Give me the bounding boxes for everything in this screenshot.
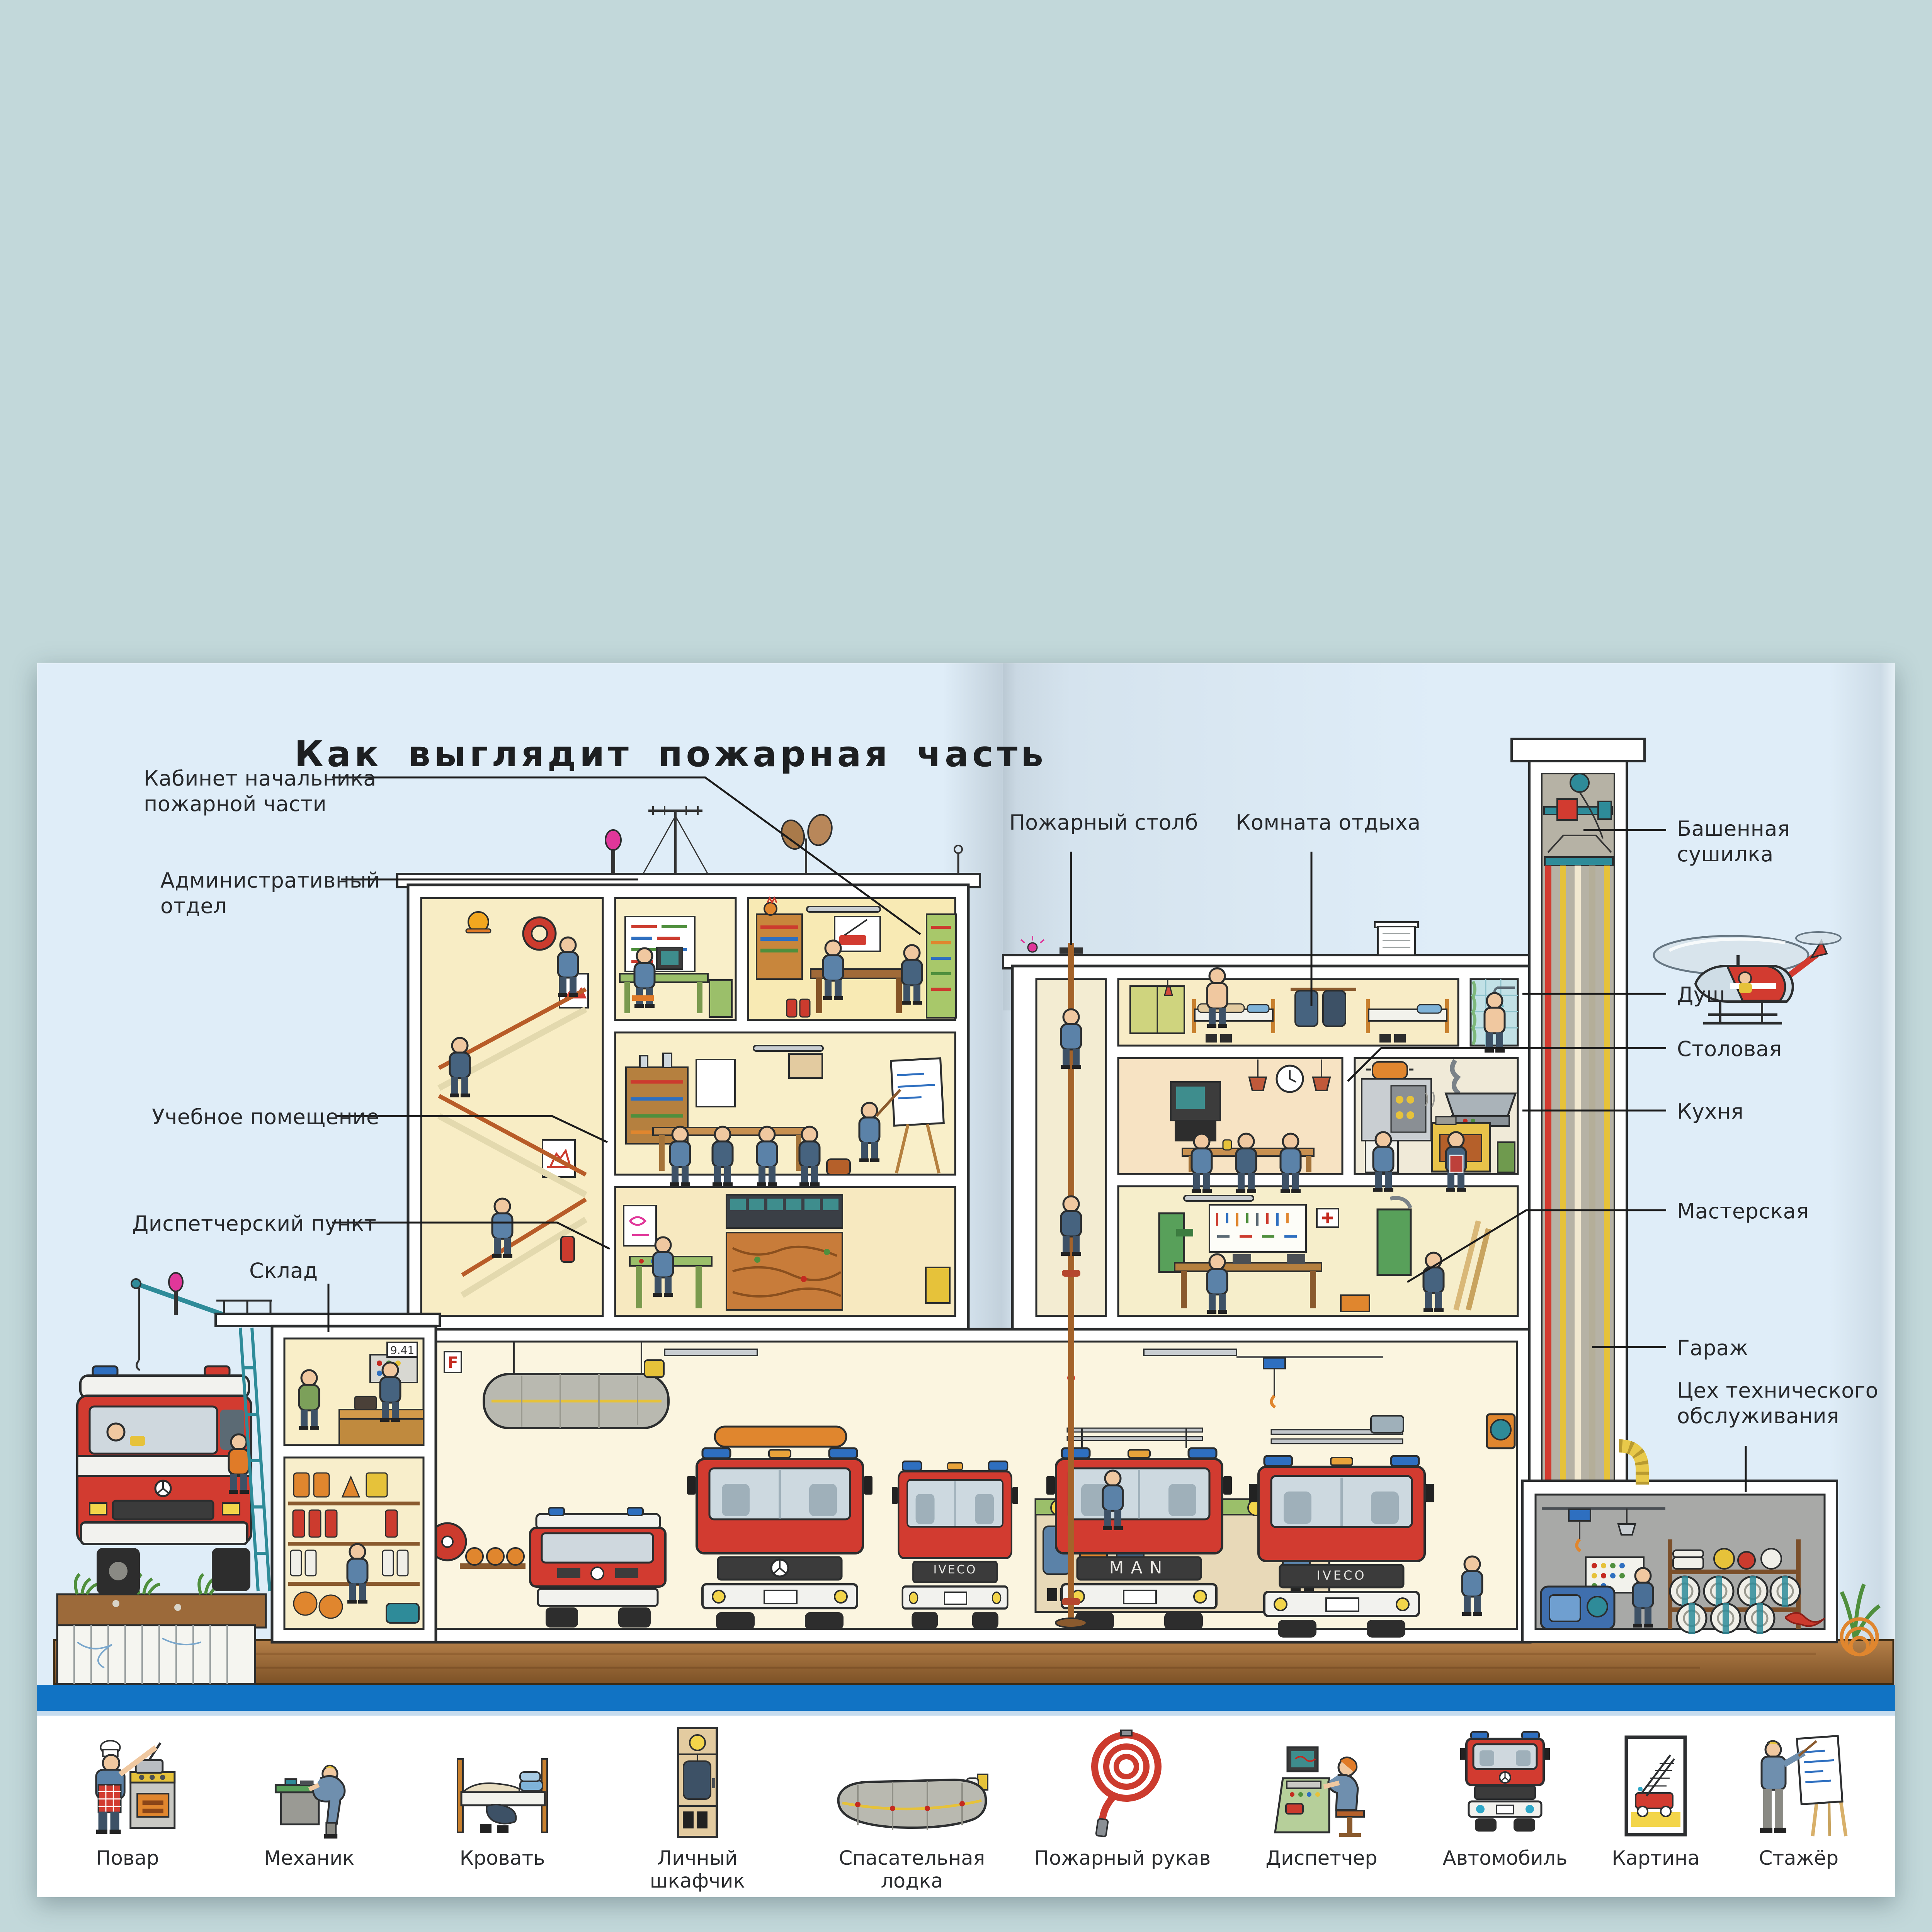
label-dispatch: Диспетчерский пункт — [132, 1211, 376, 1236]
hydrant-sign-letter: F — [447, 1354, 458, 1372]
truck-marking-iveco-left: IVECO — [934, 1563, 977, 1577]
fire-station-cutaway-illustration: F IVECO MAN — [0, 0, 1932, 1932]
fire-hose-icon — [1034, 1723, 1211, 1840]
truck-marking-iveco-right: IVECO — [1316, 1568, 1366, 1583]
label-maintenance: Цех технического обслуживания — [1677, 1378, 1878, 1429]
vocab-item-trainee: Стажёр — [1710, 1723, 1888, 1870]
vocab-label: Личный шкафчик — [609, 1847, 786, 1893]
vocab-label: Кровать — [413, 1847, 591, 1870]
page-title: Как выглядит пожарная часть — [294, 733, 1047, 775]
label-training: Учебное помещение — [152, 1104, 379, 1130]
label-pole: Пожарный столб — [1009, 810, 1198, 835]
cook-icon — [39, 1723, 216, 1840]
helicopter — [1654, 932, 1841, 1023]
label-admin: Административный отдел — [160, 868, 380, 919]
boat-icon — [823, 1723, 1001, 1840]
blue-divider-bar — [37, 1685, 1895, 1711]
digital-clock-sign: 9.41 — [387, 1342, 417, 1357]
vocab-item-dispatcher: Диспетчер — [1233, 1723, 1410, 1870]
drying-tower — [1512, 739, 1645, 1590]
left-roof-items — [605, 806, 962, 874]
label-chief-office: Кабинет начальника пожарной части — [144, 766, 376, 817]
clock-sign-text: 9.41 — [390, 1344, 414, 1357]
fire-truck-iveco-left: IVECO — [892, 1461, 1018, 1628]
garage-block: F IVECO MAN — [408, 1329, 1530, 1642]
left-building — [397, 806, 980, 1329]
vocab-item-hose: Пожарный рукав — [1034, 1723, 1211, 1870]
small-fire-truck-outside — [77, 1366, 251, 1594]
mechanic-icon — [220, 1723, 398, 1840]
label-garage: Гараж — [1677, 1335, 1748, 1361]
label-kitchen: Кухня — [1677, 1099, 1744, 1124]
label-dining: Столовая — [1677, 1036, 1782, 1062]
bed-icon — [413, 1723, 591, 1840]
book-spread-photo: F IVECO MAN — [0, 0, 1932, 1932]
hydrant-sign: F — [444, 1352, 461, 1372]
vocab-item-cook: Повар — [39, 1723, 216, 1870]
vocab-label: Диспетчер — [1233, 1847, 1410, 1870]
vocab-item-boat: Спасательная лодка — [823, 1723, 1001, 1893]
fire-truck-mercedes — [687, 1427, 872, 1630]
locker-icon — [609, 1723, 786, 1840]
driveway-ground — [54, 1640, 1893, 1684]
vocab-item-locker: Личный шкафчик — [609, 1723, 786, 1893]
vocab-item-bed: Кровать — [413, 1723, 591, 1870]
truck-marking-man: MAN — [1109, 1558, 1169, 1578]
trainee-icon — [1710, 1723, 1888, 1840]
vocab-label: Спасательная лодка — [823, 1847, 1001, 1893]
white-fence — [57, 1625, 255, 1684]
front-yard — [57, 1273, 270, 1684]
wall-fan — [1487, 1414, 1515, 1448]
vocab-label: Механик — [220, 1847, 398, 1870]
label-rest-room: Комната отдыха — [1236, 810, 1421, 835]
vocab-label: Стажёр — [1710, 1847, 1888, 1870]
vocab-label: Повар — [39, 1847, 216, 1870]
label-tower: Башенная сушилка — [1677, 816, 1790, 867]
label-storage: Склад — [249, 1258, 318, 1284]
dispatcher-icon — [1233, 1723, 1410, 1840]
vocab-item-mechanic: Механик — [220, 1723, 398, 1870]
label-workshop: Мастерская — [1677, 1199, 1809, 1224]
label-shower: Душ — [1677, 982, 1725, 1008]
vocab-label: Пожарный рукав — [1034, 1847, 1211, 1870]
